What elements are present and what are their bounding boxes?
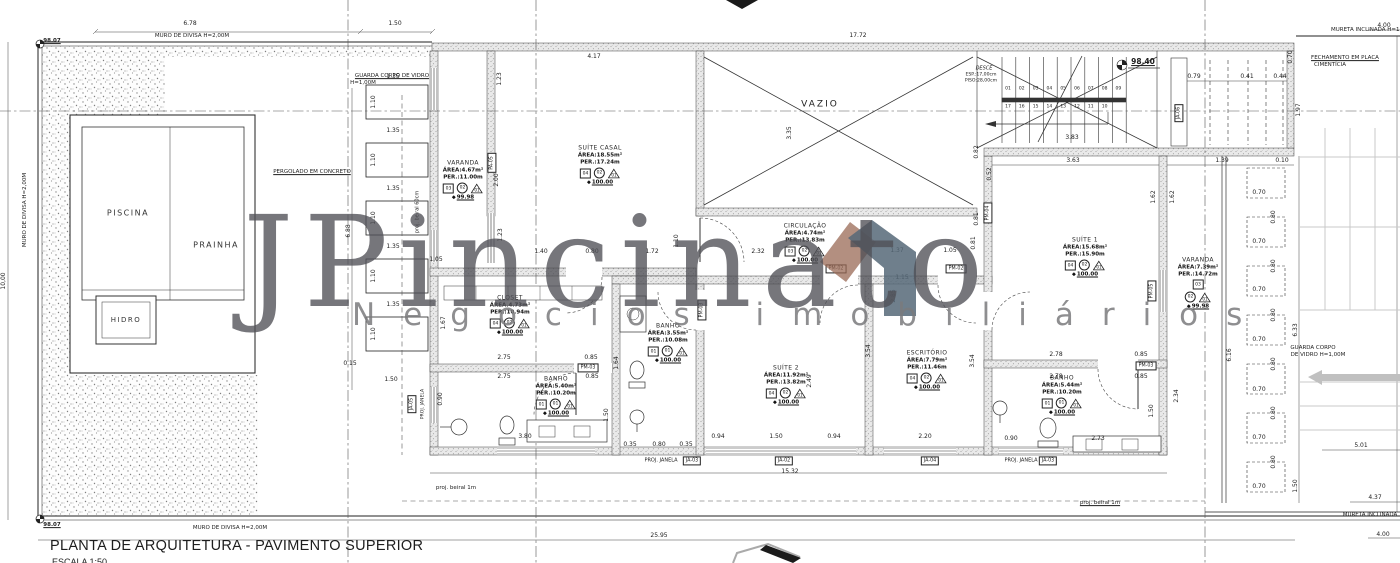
windows — [430, 68, 1167, 455]
north-arrow-icon — [726, 0, 758, 9]
drawing-title: PLANTA DE ARQUITETURA - PAVIMENTO SUPERI… — [50, 538, 423, 554]
pool-hidro-label: HIDRO — [111, 316, 142, 324]
level-marker-circle — [1117, 60, 1160, 70]
drawing-scale: ESCALA 1:50 — [52, 557, 107, 563]
pool-piscina-label: PISCINA — [107, 209, 149, 218]
walls — [430, 43, 1294, 455]
vazio-cross — [704, 57, 1157, 205]
floor-plan-page: 6.781.5017.724.0010,006.880.151.501.051.… — [0, 0, 1400, 563]
pool-prainha-label: PRAINHA — [193, 241, 239, 250]
staircase — [977, 51, 1160, 148]
banho1-fixtures — [440, 416, 607, 445]
pergola-beams — [366, 85, 428, 351]
closet-wardrobe — [444, 286, 602, 300]
roof-grid — [1300, 128, 1400, 430]
top-right-slats — [1171, 58, 1283, 146]
banho2-fixtures — [620, 296, 646, 432]
floor-plan-drawing — [0, 0, 1400, 563]
right-railing — [1222, 156, 1226, 503]
door-leafs — [576, 218, 1138, 415]
direction-arrow — [1308, 370, 1400, 385]
brise-slats — [1247, 168, 1285, 492]
bottom-logo-icon — [733, 544, 801, 563]
banho3-fixtures — [993, 401, 1161, 452]
